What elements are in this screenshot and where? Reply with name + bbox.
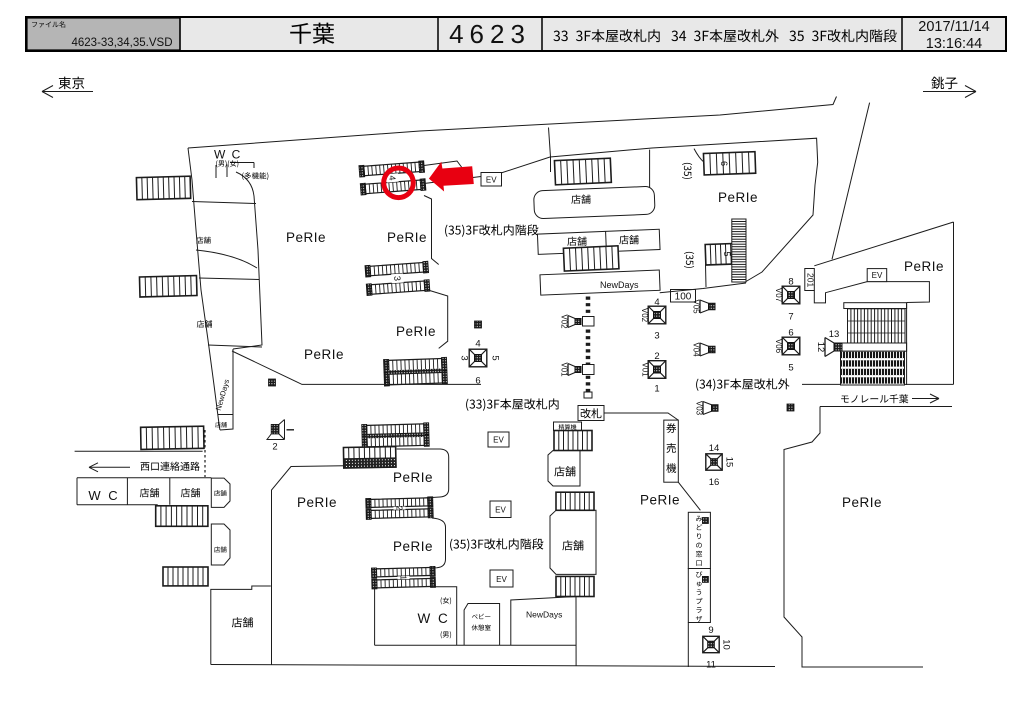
svg-text:16: 16 — [709, 477, 720, 488]
svg-text:V04: V04 — [692, 342, 701, 357]
svg-text:V02: V02 — [640, 308, 649, 323]
svg-text:PeRIe: PeRIe — [297, 495, 337, 510]
svg-text:12: 12 — [815, 342, 826, 353]
svg-text:9: 9 — [708, 625, 713, 636]
svg-text:4623-33,34,35.VSD: 4623-33,34,35.VSD — [71, 37, 172, 49]
svg-text:NewDays: NewDays — [600, 280, 639, 290]
svg-text:PeRIe: PeRIe — [904, 259, 944, 274]
svg-text:4: 4 — [654, 297, 659, 308]
svg-text:PeRIe: PeRIe — [304, 347, 344, 362]
svg-text:V06: V06 — [774, 339, 783, 354]
svg-text:1: 1 — [654, 384, 659, 395]
svg-text:2: 2 — [394, 506, 404, 511]
svg-text:EV: EV — [495, 506, 506, 515]
svg-text:EV: EV — [496, 575, 507, 584]
svg-text:6: 6 — [719, 161, 729, 166]
svg-text:W C: W C — [214, 148, 242, 162]
svg-text:5: 5 — [490, 355, 501, 360]
svg-text:V07: V07 — [774, 288, 783, 303]
svg-text:6: 6 — [788, 328, 793, 339]
svg-text:6: 6 — [475, 376, 480, 387]
svg-text:NewDays: NewDays — [526, 610, 562, 620]
svg-text:W C: W C — [418, 611, 450, 626]
svg-text:PeRIe: PeRIe — [842, 495, 882, 510]
svg-text:2: 2 — [272, 442, 277, 453]
svg-text:PeRIe: PeRIe — [718, 190, 758, 205]
svg-text:13: 13 — [829, 329, 840, 340]
svg-text:V05: V05 — [692, 299, 701, 314]
svg-text:5: 5 — [722, 251, 732, 256]
svg-text:V01: V01 — [560, 362, 569, 377]
svg-text:15: 15 — [724, 457, 735, 468]
svg-text:V02: V02 — [560, 314, 569, 329]
svg-text:100: 100 — [675, 292, 692, 303]
svg-text:PeRIe: PeRIe — [387, 230, 427, 245]
svg-text:PeRIe: PeRIe — [286, 230, 326, 245]
svg-text:4623: 4623 — [449, 19, 531, 49]
svg-text:V01: V01 — [641, 362, 650, 377]
svg-text:2: 2 — [654, 351, 659, 362]
svg-text:10: 10 — [721, 639, 732, 650]
svg-text:201: 201 — [806, 273, 816, 287]
svg-text:EV: EV — [486, 175, 497, 184]
svg-text:7: 7 — [788, 312, 793, 323]
svg-text:V03: V03 — [695, 401, 704, 416]
svg-text:PeRIe: PeRIe — [393, 470, 433, 485]
svg-text:14: 14 — [709, 443, 720, 454]
svg-text:4: 4 — [387, 175, 397, 181]
svg-text:1: 1 — [398, 575, 408, 580]
svg-text:11: 11 — [706, 660, 716, 671]
svg-text:PeRIe: PeRIe — [640, 493, 680, 508]
svg-text:3: 3 — [459, 355, 470, 360]
svg-text:3: 3 — [654, 331, 659, 342]
svg-text:4: 4 — [475, 339, 480, 350]
svg-text:13:16:44: 13:16:44 — [926, 36, 982, 52]
svg-text:2017/11/14: 2017/11/14 — [918, 19, 990, 35]
svg-text:EV: EV — [493, 436, 504, 445]
svg-text:PeRIe: PeRIe — [396, 324, 436, 339]
svg-text:EV: EV — [872, 271, 883, 280]
svg-text:3: 3 — [392, 276, 402, 282]
svg-text:8: 8 — [788, 277, 793, 288]
svg-text:5: 5 — [788, 363, 793, 374]
svg-text:W C: W C — [88, 488, 119, 503]
svg-text:PeRIe: PeRIe — [393, 539, 433, 554]
